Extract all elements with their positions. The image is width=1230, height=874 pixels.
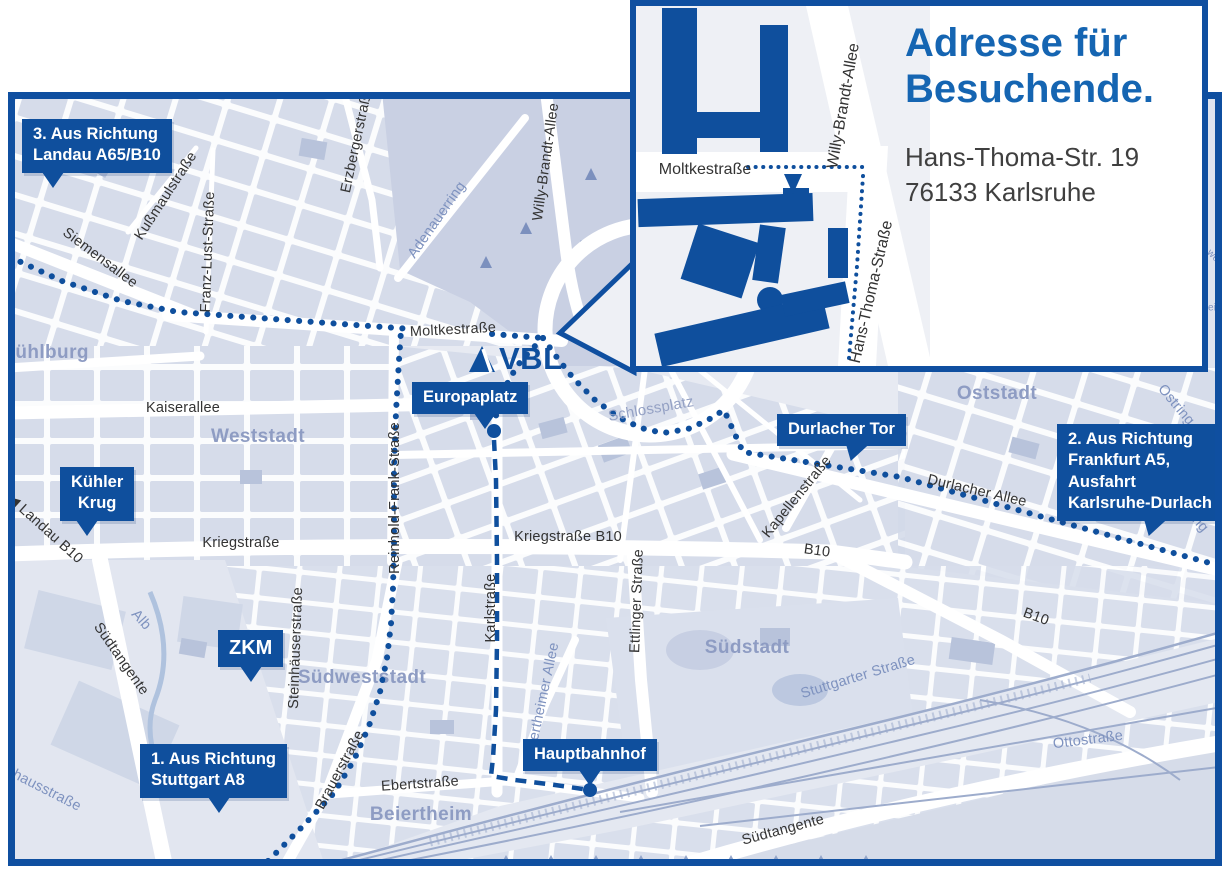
callout-pointer bbox=[579, 770, 601, 786]
callout-line: Karlsruhe-Durlach bbox=[1068, 493, 1212, 514]
inset-address-line1: Hans-Thoma-Str. 19 bbox=[905, 140, 1139, 175]
callout-durlacher-tor: Durlacher Tor bbox=[777, 414, 906, 446]
callout-pointer bbox=[240, 666, 262, 682]
vbl-logo-text: VBL bbox=[499, 341, 563, 377]
callout-pointer bbox=[208, 797, 230, 813]
callout-hauptbahnhof: Hauptbahnhof bbox=[523, 739, 657, 771]
callout-kuehler-krug: KühlerKrug bbox=[60, 467, 134, 521]
callout-line: 2. Aus Richtung bbox=[1068, 429, 1212, 450]
callout-line: Landau A65/B10 bbox=[33, 145, 161, 166]
inset-address-line2: 76133 Karlsruhe bbox=[905, 175, 1139, 210]
karlsruhe-directions-map: MühlburgWeststadtOststadtSüdstadtSüdwest… bbox=[0, 0, 1230, 874]
callout-pointer bbox=[1138, 520, 1166, 536]
inset-address: Hans-Thoma-Str. 19 76133 Karlsruhe bbox=[905, 140, 1139, 210]
callout-line: Durlacher Tor bbox=[788, 419, 895, 440]
callout-europaplatz: Europaplatz bbox=[412, 382, 528, 414]
vbl-logo: VBL bbox=[468, 341, 563, 377]
callout-route-1-stuttgart: 1. Aus RichtungStuttgart A8 bbox=[140, 744, 287, 798]
address-inset: MoltkestraßeWilly-Brandt-AlleeHans-Thoma… bbox=[630, 0, 1208, 372]
inset-street-label-moltkestra-e: Moltkestraße bbox=[659, 161, 751, 179]
inset-title: Adresse für Besuchende. bbox=[905, 20, 1154, 112]
callout-pointer bbox=[42, 172, 64, 188]
callout-line: Hauptbahnhof bbox=[534, 744, 646, 765]
callout-route-2-frankfurt: 2. Aus RichtungFrankfurt A5,AusfahrtKarl… bbox=[1057, 424, 1222, 521]
callout-pointer bbox=[474, 413, 496, 429]
callout-line: Frankfurt A5, bbox=[1068, 450, 1212, 471]
callout-line: 1. Aus Richtung bbox=[151, 749, 276, 770]
callout-pointer bbox=[840, 445, 868, 461]
callout-line: 3. Aus Richtung bbox=[33, 124, 161, 145]
callout-pointer bbox=[76, 520, 98, 536]
callout-line: Krug bbox=[71, 493, 123, 514]
inset-title-line1: Adresse für bbox=[905, 20, 1154, 66]
vbl-triangle-icon bbox=[468, 345, 496, 373]
callout-line: ZKM bbox=[229, 635, 272, 661]
callout-line: Ausfahrt bbox=[1068, 472, 1212, 493]
callout-line: Kühler bbox=[71, 472, 123, 493]
callout-line: Europaplatz bbox=[423, 387, 517, 408]
callout-route-3-landau: 3. Aus RichtungLandau A65/B10 bbox=[22, 119, 172, 173]
inset-title-line2: Besuchende. bbox=[905, 66, 1154, 112]
callout-line: Stuttgart A8 bbox=[151, 770, 276, 791]
callout-zkm: ZKM bbox=[218, 630, 283, 667]
